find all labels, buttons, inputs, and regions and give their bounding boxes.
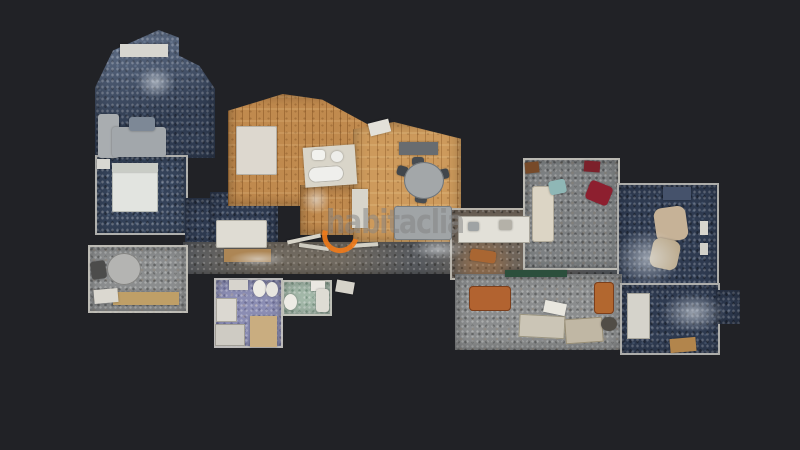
bed-suite (236, 126, 277, 175)
rug-tan (224, 249, 271, 262)
sink-counter (229, 280, 248, 290)
sofa-main (112, 127, 166, 157)
wardrobe-white (352, 189, 368, 228)
office-chair (601, 317, 617, 331)
fixture-loose (335, 280, 355, 295)
room-suite-hall-wood[interactable] (300, 185, 360, 235)
tv-unit (663, 187, 691, 200)
tub-green (316, 289, 329, 312)
toilet-green (284, 294, 297, 310)
kitchen-sink (468, 222, 479, 231)
ensuite-sink (312, 150, 325, 160)
room-bedroom-4-annex[interactable] (716, 290, 740, 324)
bench-tan (669, 337, 696, 353)
planter-strip (505, 270, 567, 277)
bed-pillows (112, 163, 158, 172)
wood-mat (250, 316, 277, 347)
sofa-orange-1 (469, 286, 511, 311)
cabinet-red (584, 160, 601, 172)
wardrobe-right (627, 293, 650, 339)
counter-tan (113, 292, 179, 305)
ensuite-toilet (331, 151, 343, 162)
window-sill (120, 44, 168, 57)
clutter-white (93, 288, 118, 304)
dining-table (404, 162, 444, 199)
bathtub (307, 165, 344, 183)
bidet (266, 282, 278, 297)
floorplan-canvas[interactable]: habitaclia (0, 0, 800, 450)
sofa-dining (394, 206, 452, 240)
bed-small (216, 220, 267, 248)
desk-1 (518, 314, 565, 339)
sofa-orange-2 (594, 282, 614, 314)
toilet (253, 280, 266, 297)
chair-dark (90, 260, 107, 280)
cabinet-brown (524, 161, 539, 173)
nightstand (97, 159, 110, 169)
desk-2 (564, 317, 604, 345)
sideboard (399, 142, 438, 155)
door-leaf-2 (700, 243, 708, 255)
kitchen-hob (499, 220, 512, 230)
washer (216, 298, 237, 322)
round-table (107, 253, 141, 285)
ottoman (129, 117, 155, 131)
door-leaf-1 (700, 221, 708, 235)
shower-tray (215, 324, 245, 346)
